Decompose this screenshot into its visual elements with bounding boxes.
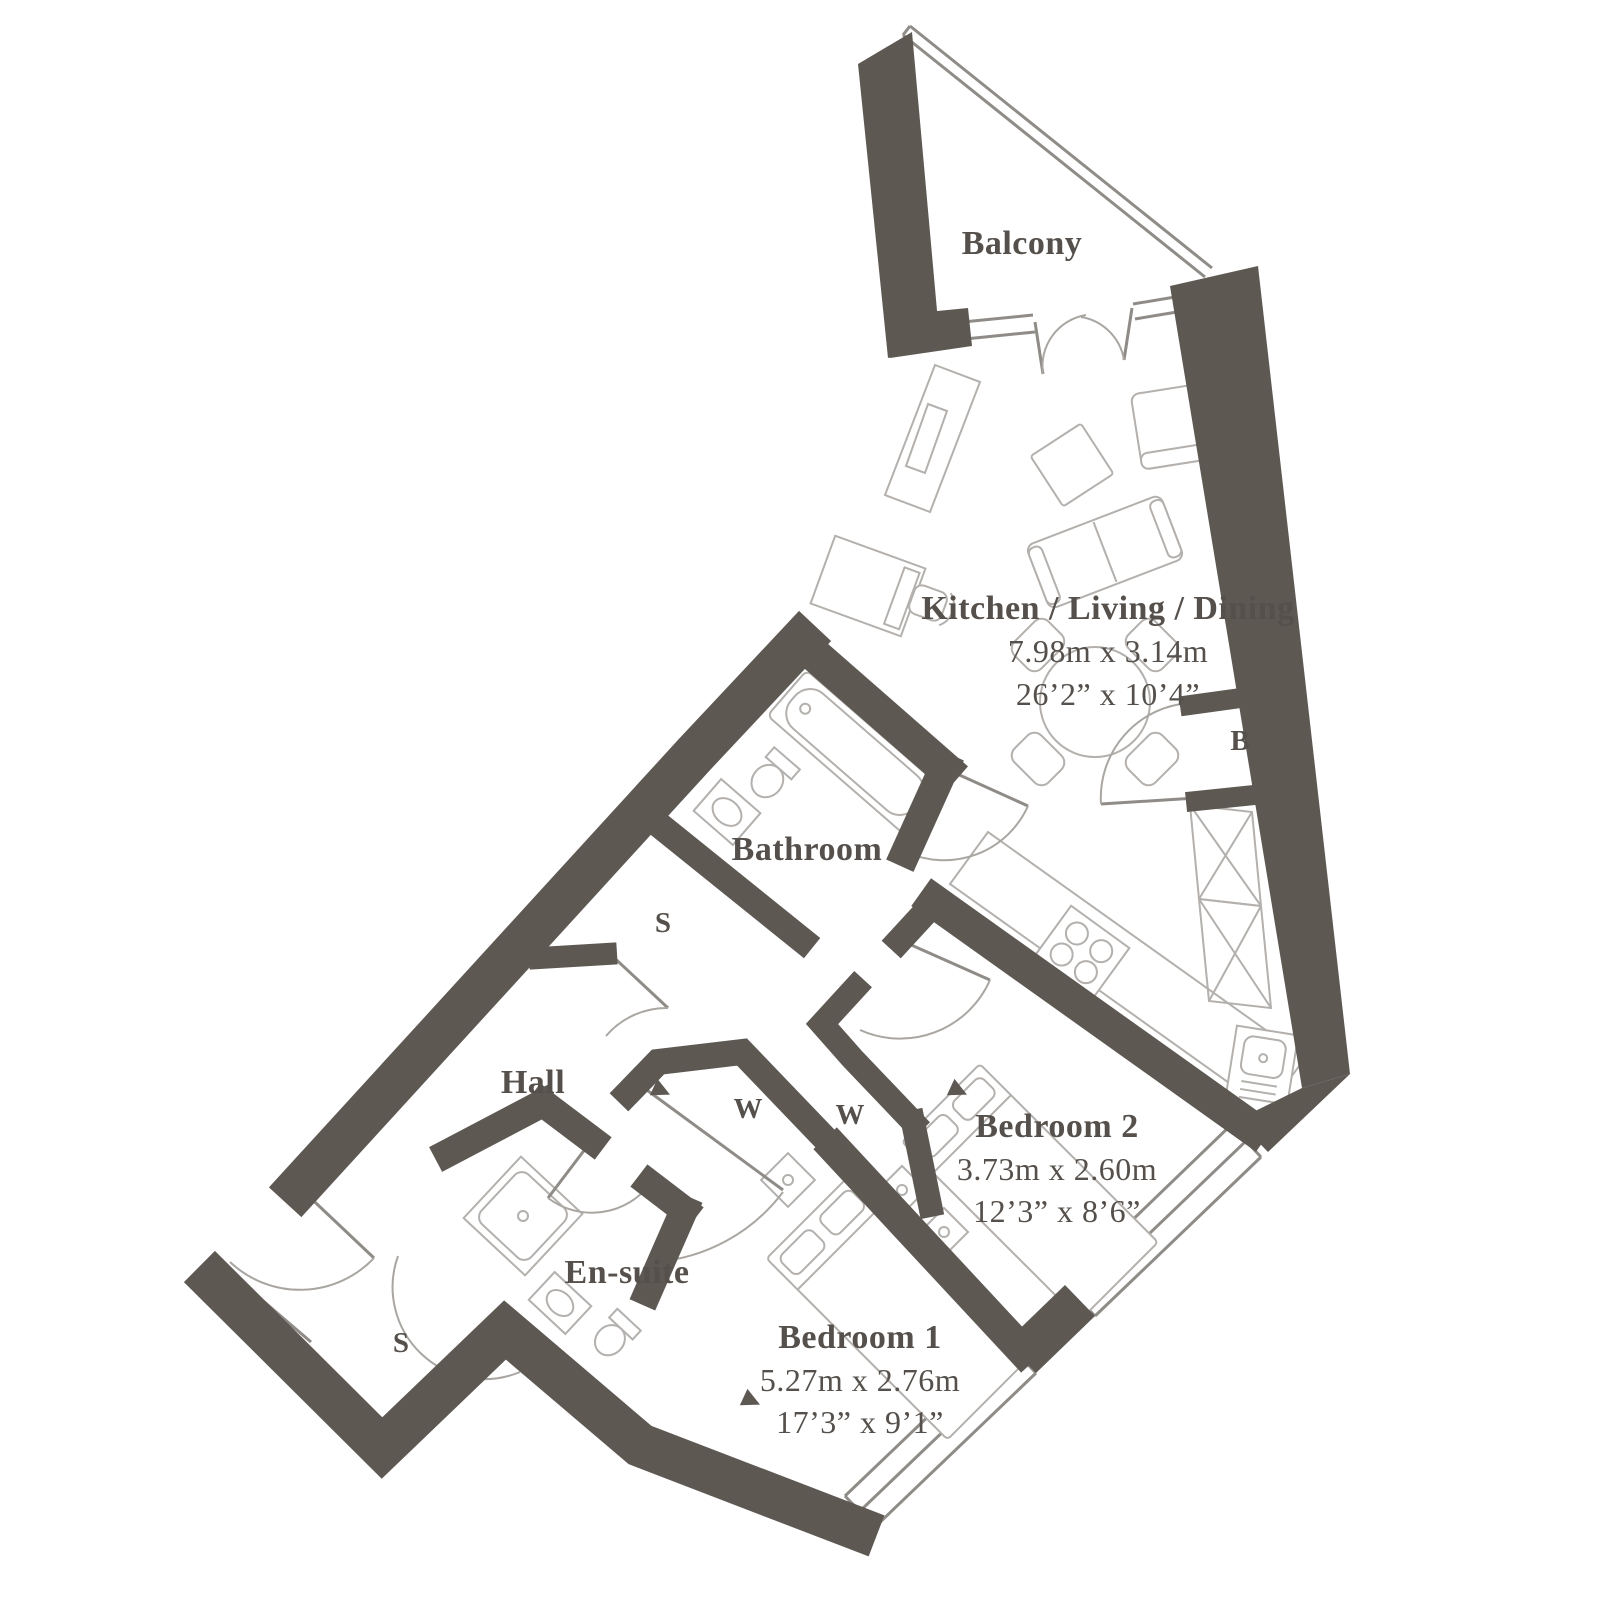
store-stub-wall [540,954,606,958]
ensuite-toilet [587,1309,640,1363]
floor-plan-drawing: Balcony Kitchen / Living / Dining 7.98m … [0,0,1600,1600]
ensuite-nw-wall [448,1103,543,1153]
floor-plan-page: Balcony Kitchen / Living / Dining 7.98m … [0,0,1600,1600]
label-store-hall: S [655,907,671,939]
balcony-sill-wall [886,308,972,358]
label-kld-imperial: 26’2” x 10’4” [1016,676,1200,712]
label-bedroom1-imperial: 17’3” x 9’1” [776,1404,944,1440]
wardrobe-divider-wall [913,1122,930,1205]
label-bedroom2: Bedroom 2 [975,1108,1138,1145]
label-bedroom2-metric: 3.73m x 2.60m [957,1151,1157,1187]
coffee-table [1031,424,1114,507]
label-kld: Kitchen / Living / Dining [921,590,1294,627]
label-wardrobe-2: W [836,1099,865,1131]
label-boiler: B [1230,725,1249,757]
label-wardrobe-1: W [734,1093,763,1125]
balcony-french-doors [1035,308,1132,374]
hall-wardrobe-wall [628,1052,836,1150]
label-store-entrance: S [393,1327,409,1359]
label-bedroom2-imperial: 12’3” x 8’6” [973,1193,1141,1229]
tall-units [1190,805,1271,1008]
label-kld-metric: 7.98m x 3.14m [1008,633,1208,669]
ensuite-ne-wall [543,1103,592,1140]
desk [811,536,926,636]
balcony-left-wall [858,32,940,358]
tv-unit [885,365,980,512]
bedroom2-door [860,940,990,1039]
hall-store-door [606,952,668,1036]
label-ensuite: En-suite [565,1254,690,1291]
label-bathroom: Bathroom [732,831,883,868]
label-hall: Hall [501,1064,565,1101]
label-bedroom1: Bedroom 1 [778,1319,941,1356]
bathroom-toilet [743,747,799,805]
bedroom2-door-jamb [900,902,935,940]
label-bedroom1-metric: 5.27m x 2.76m [760,1362,960,1398]
label-balcony: Balcony [962,225,1083,262]
bottom-zigzag-wall [215,1282,856,1528]
boiler-stub-bottom [1196,795,1254,801]
